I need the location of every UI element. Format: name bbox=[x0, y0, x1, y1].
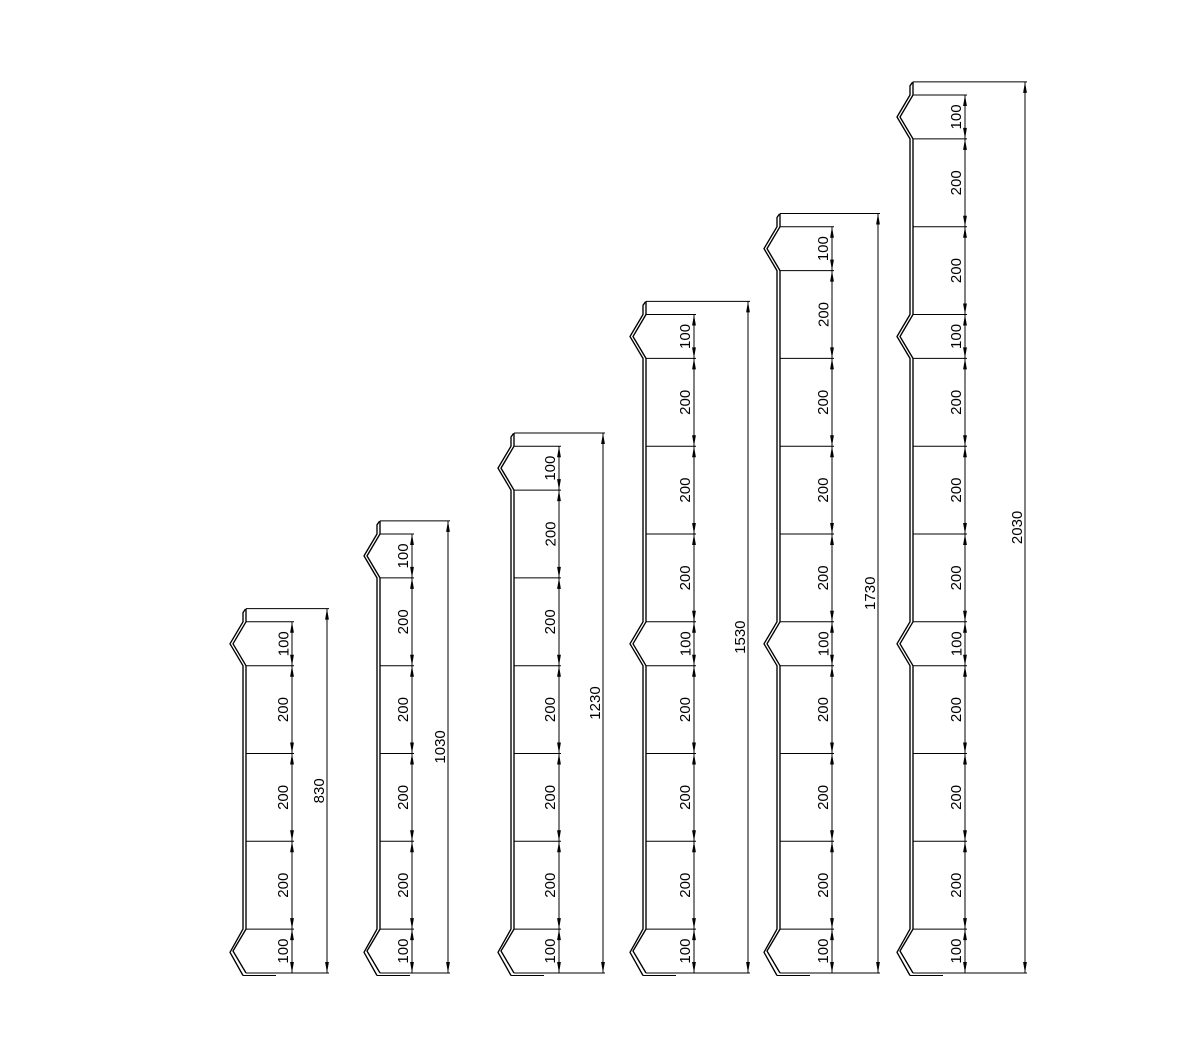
dimension-arrowhead bbox=[692, 622, 696, 633]
dimension-arrowhead bbox=[290, 929, 294, 940]
segment-dimension-label: 200 bbox=[677, 697, 694, 722]
post-profile-outer-line bbox=[230, 609, 246, 975]
dimension-arrowhead bbox=[692, 446, 696, 457]
dimension-arrowhead bbox=[830, 523, 834, 534]
post-profile-outer-line bbox=[630, 302, 646, 976]
segment-dimension-label: 200 bbox=[275, 697, 292, 722]
dimension-arrowhead bbox=[692, 315, 696, 326]
dimension-arrowhead bbox=[410, 743, 414, 754]
segment-dimension-label: 200 bbox=[815, 565, 832, 590]
dimension-arrowhead bbox=[963, 435, 967, 446]
segment-dimension-label: 200 bbox=[948, 873, 965, 898]
dimension-arrowhead bbox=[746, 301, 750, 312]
dimension-arrowhead bbox=[290, 666, 294, 677]
dimension-arrowhead bbox=[410, 655, 414, 666]
dimension-arrowhead bbox=[963, 358, 967, 369]
dimension-arrowhead bbox=[830, 534, 834, 545]
post-column-1030: 1002002002002001001030 bbox=[364, 521, 450, 976]
dimension-arrowhead bbox=[830, 271, 834, 282]
segment-dimension-label: 100 bbox=[275, 939, 292, 964]
dimension-arrowhead bbox=[830, 754, 834, 765]
dimension-arrowhead bbox=[410, 578, 414, 589]
dimension-arrowhead bbox=[963, 743, 967, 754]
post-column-1530: 1002002002001002002002001001530 bbox=[630, 301, 750, 975]
segment-dimension-label: 100 bbox=[948, 324, 965, 349]
dimension-arrowhead bbox=[963, 534, 967, 545]
dimension-arrowhead bbox=[830, 358, 834, 369]
segment-dimension-label: 200 bbox=[677, 390, 694, 415]
dimension-arrowhead bbox=[557, 841, 561, 852]
segment-dimension-label: 100 bbox=[948, 631, 965, 656]
dimension-arrowhead bbox=[557, 567, 561, 578]
segment-dimension-label: 200 bbox=[948, 785, 965, 810]
segment-dimension-label: 200 bbox=[395, 609, 412, 634]
dimension-arrowhead bbox=[963, 315, 967, 326]
segment-dimension-label: 200 bbox=[948, 478, 965, 503]
dimension-arrowhead bbox=[692, 523, 696, 534]
post-profile-inner-line bbox=[501, 433, 514, 973]
dimension-arrowhead bbox=[963, 830, 967, 841]
drawing-canvas: 1002002002001008301002002002002001001030… bbox=[0, 0, 1201, 1048]
dimension-arrowhead bbox=[692, 754, 696, 765]
segment-dimension-label: 100 bbox=[395, 543, 412, 568]
post-column-2030: 1002002001002002002001002002002001002030 bbox=[897, 82, 1027, 976]
dimension-arrowhead bbox=[410, 830, 414, 841]
dimension-arrowhead bbox=[963, 918, 967, 929]
dimension-arrowhead bbox=[557, 666, 561, 677]
segment-dimension-label: 200 bbox=[677, 873, 694, 898]
dimension-arrowhead bbox=[325, 609, 329, 620]
segment-dimension-label: 100 bbox=[677, 631, 694, 656]
dimension-arrowhead bbox=[557, 446, 561, 457]
dimension-arrowhead bbox=[290, 754, 294, 765]
dimension-arrowhead bbox=[410, 929, 414, 940]
segment-dimension-label: 100 bbox=[948, 939, 965, 964]
dimension-arrowhead bbox=[830, 347, 834, 358]
segment-dimension-label: 200 bbox=[542, 785, 559, 810]
segment-dimension-label: 200 bbox=[677, 785, 694, 810]
post-profile-inner-line bbox=[900, 82, 913, 973]
segment-dimension-label: 200 bbox=[542, 521, 559, 546]
dimension-arrowhead bbox=[692, 743, 696, 754]
dimension-arrowhead bbox=[410, 666, 414, 677]
overall-dimension-label: 1530 bbox=[732, 620, 749, 653]
dimension-arrowhead bbox=[830, 666, 834, 677]
post-profile-outer-line bbox=[764, 214, 780, 976]
dimension-arrowhead bbox=[692, 918, 696, 929]
dimension-arrowhead bbox=[692, 841, 696, 852]
dimension-arrowhead bbox=[557, 929, 561, 940]
dimension-arrowhead bbox=[830, 435, 834, 446]
cad-drawing-page: 1002002002001008301002002002002001001030… bbox=[0, 0, 1201, 1048]
dimension-arrowhead bbox=[692, 929, 696, 940]
segment-dimension-label: 200 bbox=[948, 697, 965, 722]
dimension-arrowhead bbox=[290, 622, 294, 633]
segment-dimension-label: 200 bbox=[948, 170, 965, 195]
dimension-arrowhead bbox=[692, 435, 696, 446]
dimension-arrowhead bbox=[410, 841, 414, 852]
segment-dimension-label: 200 bbox=[275, 873, 292, 898]
dimension-arrowhead bbox=[830, 929, 834, 940]
dimension-arrowhead bbox=[830, 622, 834, 633]
dimension-arrowhead bbox=[963, 523, 967, 534]
post-column-1230: 1002002002002002001001230 bbox=[498, 433, 605, 976]
dimension-arrowhead bbox=[557, 743, 561, 754]
dimension-arrowhead bbox=[601, 433, 605, 444]
dimension-arrowhead bbox=[963, 304, 967, 315]
dimension-arrowhead bbox=[446, 521, 450, 532]
dimension-arrowhead bbox=[876, 214, 880, 225]
segment-dimension-label: 200 bbox=[677, 565, 694, 590]
segment-dimension-label: 200 bbox=[815, 390, 832, 415]
dimension-arrowhead bbox=[963, 754, 967, 765]
post-profile-inner-line bbox=[767, 214, 780, 974]
segment-dimension-label: 200 bbox=[815, 697, 832, 722]
dimension-arrowhead bbox=[290, 841, 294, 852]
segment-dimension-label: 200 bbox=[395, 873, 412, 898]
overall-dimension-label: 1230 bbox=[587, 686, 604, 719]
dimension-arrowhead bbox=[601, 962, 605, 973]
dimension-arrowhead bbox=[692, 534, 696, 545]
post-profile-outer-line bbox=[498, 434, 514, 976]
dimension-arrowhead bbox=[963, 622, 967, 633]
post-profile-inner-line bbox=[633, 301, 646, 973]
dimension-arrowhead bbox=[410, 534, 414, 545]
dimension-arrowhead bbox=[557, 918, 561, 929]
dimension-arrowhead bbox=[830, 227, 834, 238]
segment-dimension-label: 200 bbox=[275, 785, 292, 810]
segment-dimension-label: 200 bbox=[395, 697, 412, 722]
segment-dimension-label: 200 bbox=[815, 873, 832, 898]
overall-dimension-label: 2030 bbox=[1009, 511, 1026, 544]
dimension-arrowhead bbox=[1023, 962, 1027, 973]
dimension-arrowhead bbox=[446, 962, 450, 973]
overall-dimension-label: 830 bbox=[311, 778, 328, 803]
dimension-arrowhead bbox=[963, 929, 967, 940]
dimension-arrowhead bbox=[963, 446, 967, 457]
dimension-arrowhead bbox=[963, 841, 967, 852]
segment-dimension-label: 100 bbox=[948, 104, 965, 129]
post-profile-inner-line bbox=[233, 609, 246, 973]
dimension-arrowhead bbox=[963, 666, 967, 677]
dimension-arrowhead bbox=[557, 830, 561, 841]
segment-dimension-label: 200 bbox=[948, 565, 965, 590]
segment-dimension-label: 100 bbox=[815, 939, 832, 964]
dimension-arrowhead bbox=[830, 743, 834, 754]
dimension-arrowhead bbox=[557, 490, 561, 501]
segment-dimension-label: 200 bbox=[542, 873, 559, 898]
segment-dimension-label: 100 bbox=[815, 236, 832, 261]
dimension-arrowhead bbox=[963, 227, 967, 238]
dimension-arrowhead bbox=[410, 918, 414, 929]
post-column-1730: 1002002002002001002002002001001730 bbox=[764, 214, 880, 976]
segment-dimension-label: 200 bbox=[948, 258, 965, 283]
segment-dimension-label: 100 bbox=[275, 631, 292, 656]
overall-dimension-label: 1030 bbox=[432, 730, 449, 763]
segment-dimension-label: 200 bbox=[395, 785, 412, 810]
segment-dimension-label: 100 bbox=[395, 939, 412, 964]
dimension-arrowhead bbox=[830, 918, 834, 929]
segment-dimension-label: 200 bbox=[542, 609, 559, 634]
segment-dimension-label: 100 bbox=[815, 631, 832, 656]
dimension-arrowhead bbox=[876, 962, 880, 973]
segment-dimension-label: 200 bbox=[677, 478, 694, 503]
dimension-arrowhead bbox=[963, 216, 967, 227]
dimension-arrowhead bbox=[692, 611, 696, 622]
dimension-arrowhead bbox=[692, 666, 696, 677]
dimension-arrowhead bbox=[557, 754, 561, 765]
dimension-arrowhead bbox=[290, 918, 294, 929]
dimension-arrowhead bbox=[325, 962, 329, 973]
dimension-arrowhead bbox=[830, 611, 834, 622]
dimension-arrowhead bbox=[963, 139, 967, 150]
dimension-arrowhead bbox=[557, 578, 561, 589]
segment-dimension-label: 100 bbox=[542, 939, 559, 964]
dimension-arrowhead bbox=[290, 830, 294, 841]
segment-dimension-label: 200 bbox=[815, 785, 832, 810]
dimension-arrowhead bbox=[830, 446, 834, 457]
dimension-arrowhead bbox=[557, 655, 561, 666]
dimension-arrowhead bbox=[692, 830, 696, 841]
post-column-830: 100200200200100830 bbox=[230, 609, 329, 976]
dimension-arrowhead bbox=[1023, 82, 1027, 93]
segment-dimension-label: 200 bbox=[542, 697, 559, 722]
segment-dimension-label: 100 bbox=[542, 456, 559, 481]
dimension-arrowhead bbox=[746, 962, 750, 973]
dimension-arrowhead bbox=[692, 358, 696, 369]
post-profile-outer-line bbox=[897, 82, 913, 975]
segment-dimension-label: 200 bbox=[948, 390, 965, 415]
segment-dimension-label: 100 bbox=[677, 324, 694, 349]
segment-dimension-label: 100 bbox=[677, 939, 694, 964]
dimension-arrowhead bbox=[963, 611, 967, 622]
segment-dimension-label: 200 bbox=[815, 478, 832, 503]
dimension-arrowhead bbox=[830, 841, 834, 852]
post-profile-inner-line bbox=[367, 521, 380, 973]
post-profile-outer-line bbox=[364, 521, 380, 975]
dimension-arrowhead bbox=[830, 830, 834, 841]
dimension-arrowhead bbox=[963, 95, 967, 106]
overall-dimension-label: 1730 bbox=[862, 577, 879, 610]
dimension-arrowhead bbox=[290, 743, 294, 754]
segment-dimension-label: 200 bbox=[815, 302, 832, 327]
dimension-arrowhead bbox=[410, 754, 414, 765]
